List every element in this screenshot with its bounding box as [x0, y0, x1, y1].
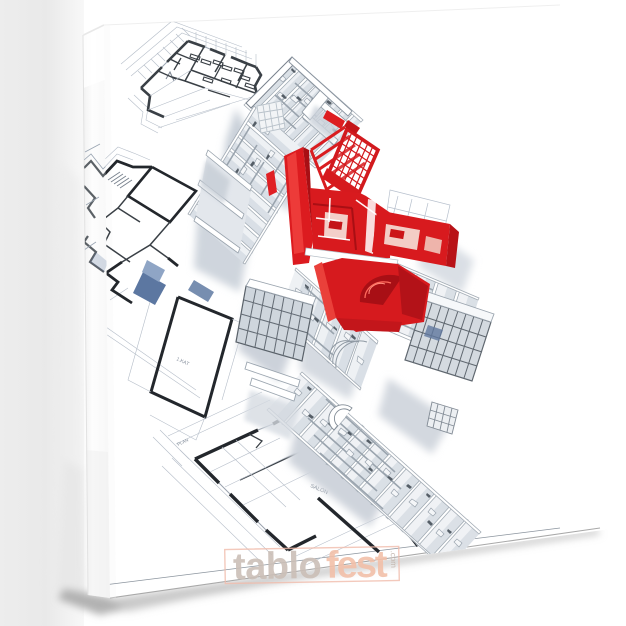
svg-text:fest: fest: [326, 544, 389, 587]
svg-text:.com: .com: [389, 551, 398, 569]
svg-text:tablo: tablo: [233, 545, 322, 589]
